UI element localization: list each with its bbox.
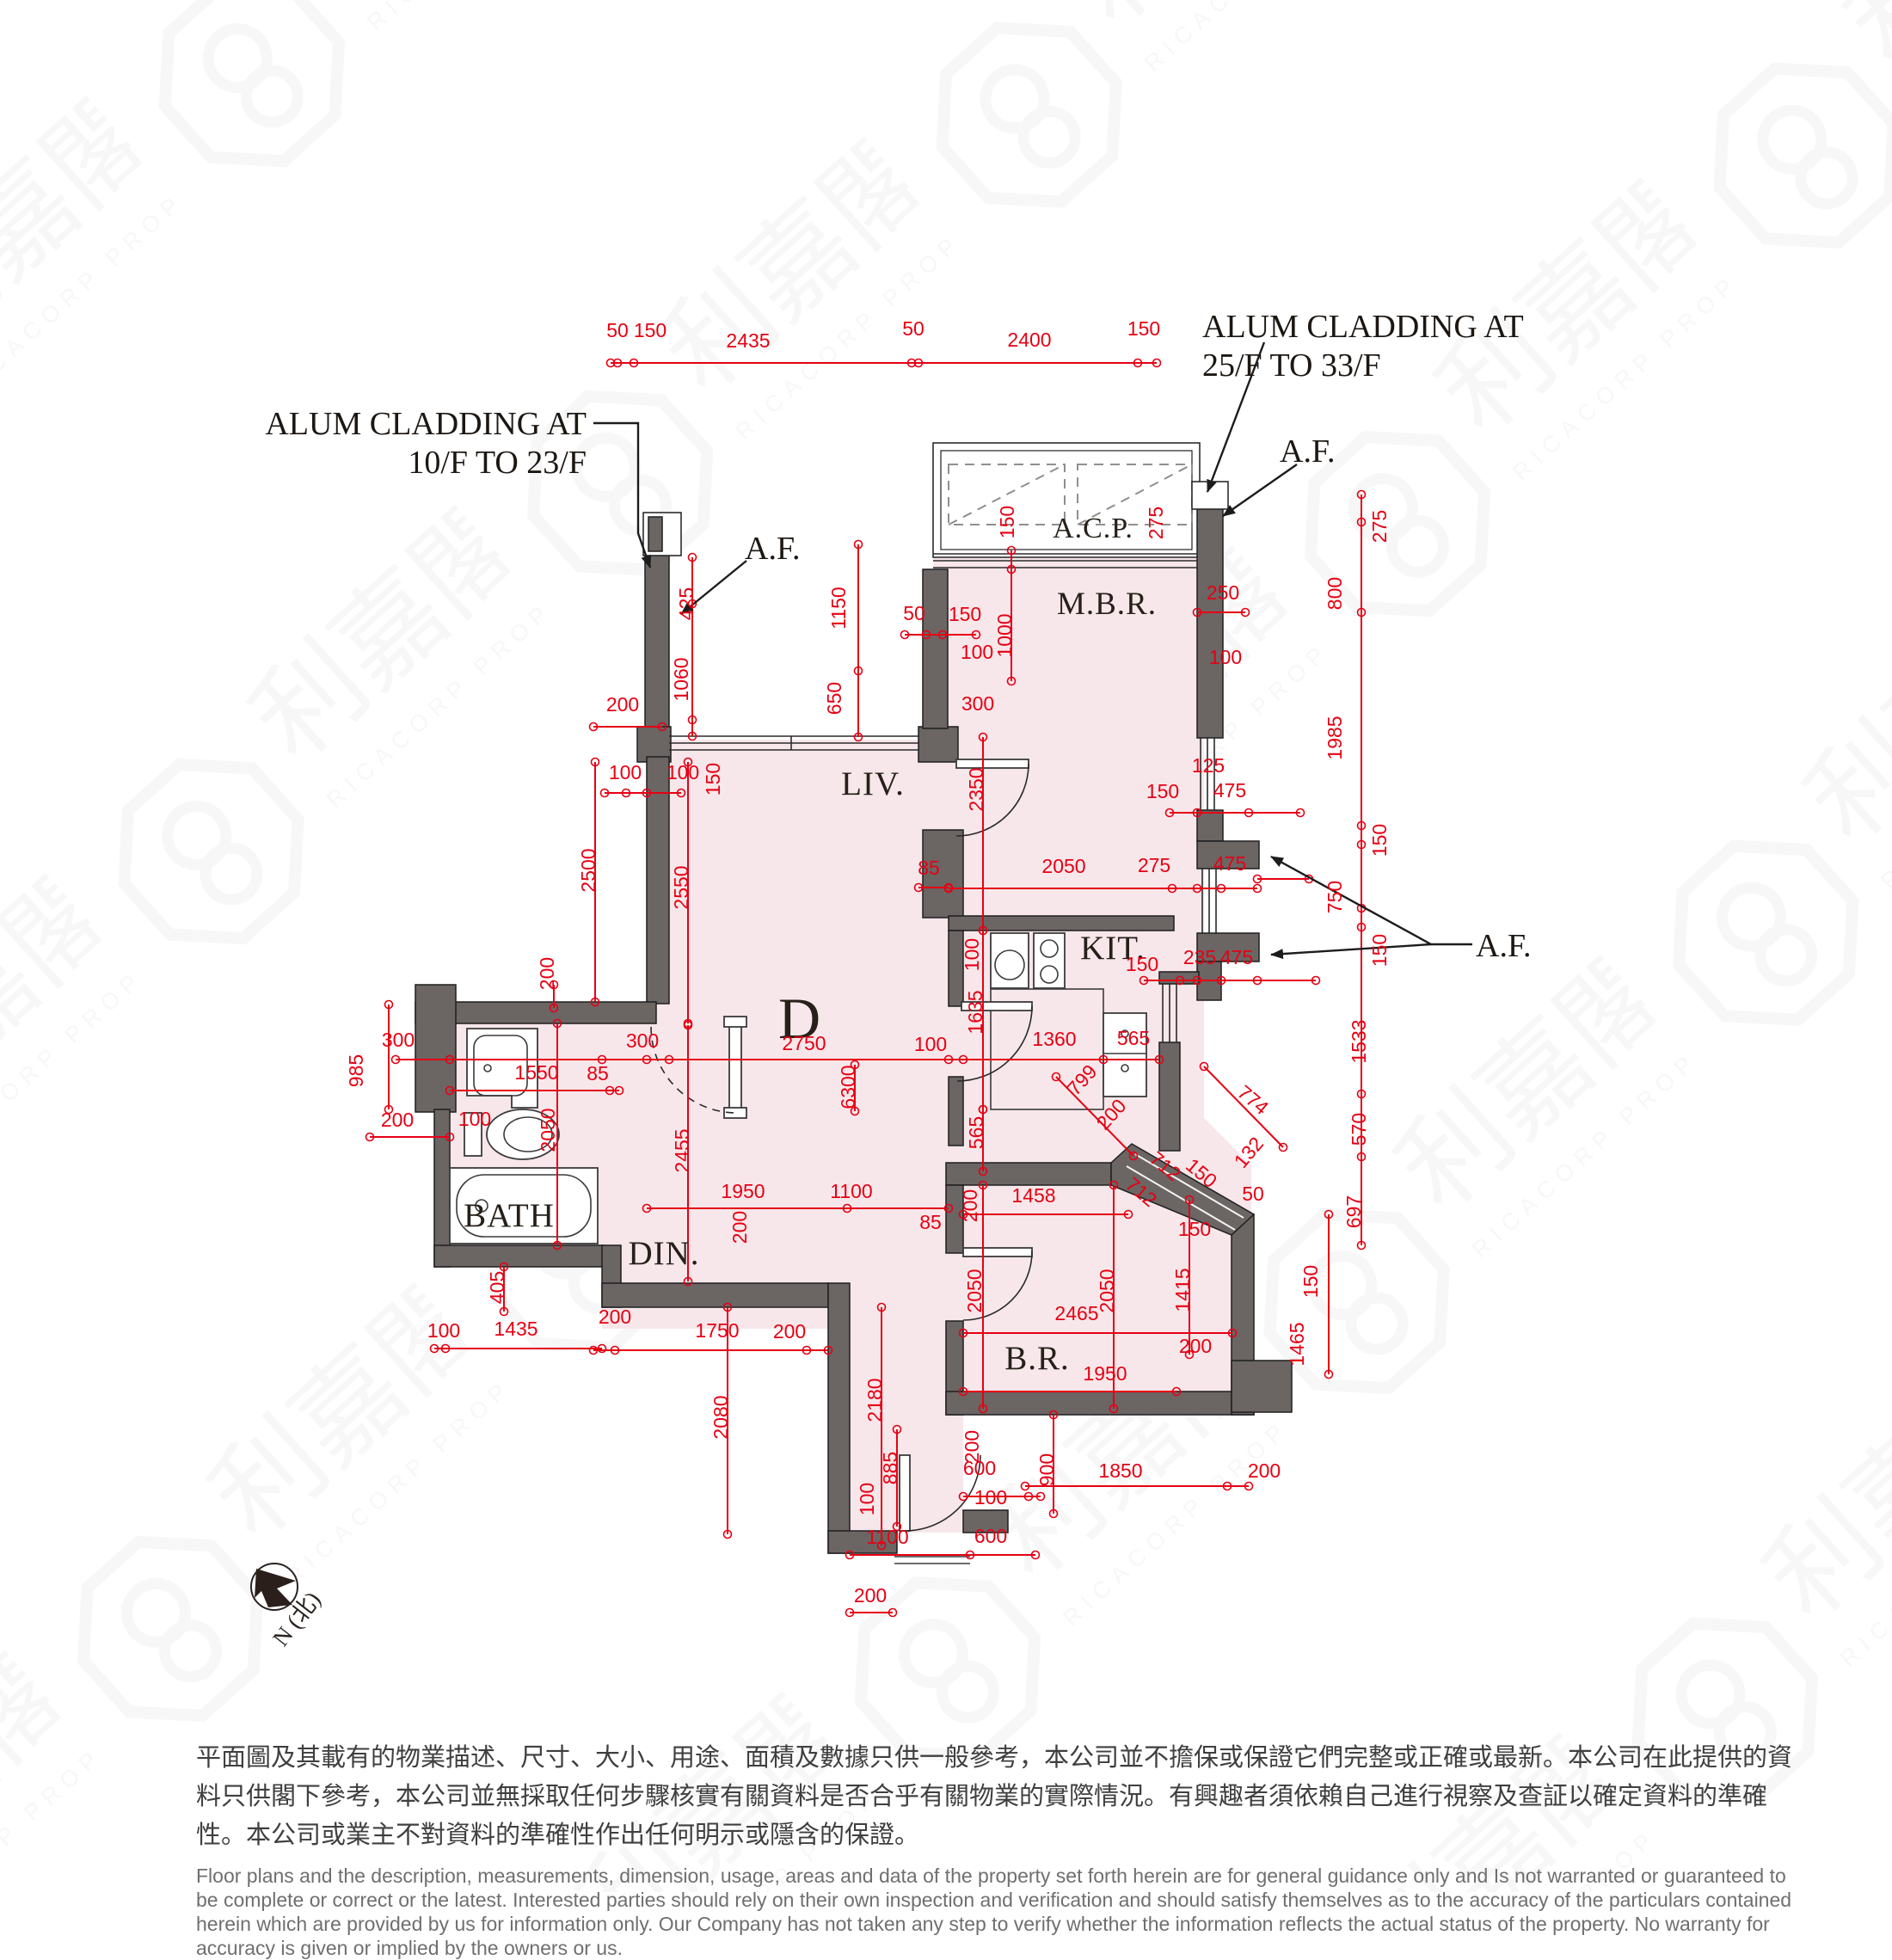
dimension-label: 697 <box>1342 1195 1365 1228</box>
dimension-label: 1000 <box>993 613 1016 657</box>
dimension-label: 475 <box>1213 779 1246 802</box>
dimension-label: 200 <box>599 1306 631 1328</box>
dimension-label: 200 <box>1179 1335 1212 1357</box>
dimension-label: 150 <box>1126 953 1158 975</box>
dimension-label: 800 <box>1324 577 1346 610</box>
dimension-label: 150 <box>1178 1218 1211 1240</box>
disclaimer-english: Floor plans and the description, measure… <box>196 1864 1806 1960</box>
dimension-label: 150 <box>1299 1265 1322 1298</box>
dimension-label: 100 <box>666 761 699 783</box>
dimension-label: 1100 <box>830 1180 872 1202</box>
dimension-label: 1550 <box>514 1061 558 1084</box>
dimension-label: 150 <box>1368 934 1391 967</box>
dimension-label: 100 <box>458 1108 491 1130</box>
dimension-label: 200 <box>728 1211 751 1244</box>
dimension-label: 275 <box>1138 854 1170 876</box>
alum-cladding-right-line1: ALUM CLADDING AT <box>1202 309 1524 345</box>
dimension-label: 200 <box>606 693 639 716</box>
dimension-label: 300 <box>961 692 994 715</box>
dimension-label: 85 <box>919 1211 942 1233</box>
dimension-label: 600 <box>974 1525 1007 1547</box>
dimension-label: 1100 <box>866 1526 908 1548</box>
dimension-label: 100 <box>961 641 993 663</box>
dimension-label: 2180 <box>863 1378 886 1422</box>
dimension-label: 1635 <box>964 990 986 1034</box>
dimension-label: 425 <box>675 587 697 620</box>
dimension-label: 200 <box>959 1189 981 1222</box>
dimension-label: 2750 <box>782 1032 826 1054</box>
room-label-din: DIN. <box>628 1235 699 1272</box>
dimension-label: 100 <box>609 761 642 783</box>
dimension-label: 2050 <box>1096 1269 1118 1312</box>
dimension-label: 275 <box>1368 510 1391 543</box>
dimension-label: 275 <box>1145 507 1167 539</box>
alum-cladding-left-line2: 10/F TO 23/F <box>408 445 587 481</box>
alum-cladding-right-line2: 25/F TO 33/F <box>1202 347 1381 384</box>
dimension-label: 650 <box>823 682 845 715</box>
dimension-label: 150 <box>634 319 666 341</box>
dimension-label: 2500 <box>577 848 599 892</box>
dimension-label: 150 <box>1368 824 1391 857</box>
room-label-mbr: M.B.R. <box>1057 587 1157 622</box>
dimension-label: 2455 <box>671 1128 693 1172</box>
room-label-br: B.R. <box>1004 1340 1070 1377</box>
dimension-label: 2050 <box>1041 855 1085 877</box>
dimension-label: 85 <box>587 1062 609 1084</box>
dimension-label: 600 <box>963 1457 996 1479</box>
dimension-label: 200 <box>854 1584 887 1607</box>
dimension-label: 900 <box>1035 1453 1058 1486</box>
room-label-bath: BATH <box>464 1197 555 1234</box>
dimension-label: 50 <box>1242 1183 1264 1205</box>
room-label-liv: LIV. <box>841 765 905 802</box>
dimension-label: 100 <box>1209 646 1242 668</box>
af-label-right: A.F. <box>1476 928 1532 964</box>
dimension-label: 50 <box>902 317 924 340</box>
dimension-label: 6300 <box>837 1065 859 1109</box>
dimension-label: 405 <box>486 1271 508 1304</box>
dimension-label: 150 <box>949 603 981 625</box>
dimension-label: 1950 <box>1083 1362 1127 1385</box>
dimension-label: 50 <box>606 319 629 341</box>
dimension-label: 50 <box>903 602 925 624</box>
dimension-label: 1415 <box>1171 1268 1194 1312</box>
dimension-label: 200 <box>773 1320 806 1343</box>
dimension-label: 1465 <box>1286 1322 1308 1366</box>
dimension-label: 1533 <box>1348 1019 1370 1063</box>
dimension-label: 85 <box>918 857 940 879</box>
dimension-label: 235 <box>1183 946 1216 968</box>
dimension-label: 150 <box>1127 317 1160 340</box>
dimension-label: 475 <box>1213 852 1246 875</box>
dimension-label: 250 <box>1207 581 1239 604</box>
dimension-label: 200 <box>536 957 558 990</box>
dimension-label: 2050 <box>537 1108 559 1152</box>
dimension-label: 1985 <box>1324 716 1346 759</box>
dimension-label: 1360 <box>1032 1028 1076 1050</box>
dimension-label: 300 <box>382 1029 415 1051</box>
dimension-label: 1150 <box>827 587 850 629</box>
dimension-label: 100 <box>856 1483 878 1515</box>
dimension-label: 2465 <box>1054 1302 1098 1324</box>
dimension-label: 125 <box>1192 754 1225 777</box>
dimension-label: 1850 <box>1098 1459 1142 1482</box>
dimension-label: 100 <box>974 1486 1007 1508</box>
dimension-label: 2350 <box>965 767 987 811</box>
dimension-label: 200 <box>381 1109 414 1131</box>
af-label-left: A.F. <box>745 531 801 567</box>
af-label-top-right: A.F. <box>1280 433 1336 470</box>
dimension-label: 1750 <box>695 1319 739 1342</box>
dimension-label: 1435 <box>494 1318 537 1340</box>
kitchen-stove <box>991 933 1065 988</box>
dimension-label: 565 <box>965 1116 987 1149</box>
dimension-label: 985 <box>345 1054 367 1087</box>
dimension-label: 2080 <box>709 1395 732 1439</box>
disclaimer-chinese: 平面圖及其載有的物業描述、尺寸、大小、用途、面積及數據只供一般參考，本公司並不擔… <box>196 1739 1806 1855</box>
dimension-label: 150 <box>702 763 724 796</box>
dimension-label: 570 <box>1348 1113 1370 1146</box>
dimension-label: 2400 <box>1007 329 1051 351</box>
alum-cladding-left-line1: ALUM CLADDING AT <box>265 406 587 442</box>
dimension-label: 1060 <box>670 657 692 701</box>
dimension-label: 1458 <box>1011 1184 1055 1207</box>
dimension-label: 150 <box>1146 780 1179 802</box>
dimension-label: 885 <box>879 1452 901 1484</box>
dimension-label: 750 <box>1324 881 1346 913</box>
dimension-label: 200 <box>1248 1459 1281 1482</box>
dimension-label: 300 <box>626 1029 659 1052</box>
floor-plan: 利嘉閣 RICACORP PROPERTIES <box>0 0 1892 1892</box>
dimension-label: 150 <box>996 506 1018 538</box>
af-feature-left-core <box>648 517 662 551</box>
disclaimer: 平面圖及其載有的物業描述、尺寸、大小、用途、面積及數據只供一般參考，本公司並不擔… <box>196 1739 1806 1960</box>
dimension-label: 565 <box>1117 1027 1150 1049</box>
dimension-label: 2435 <box>726 329 770 352</box>
dimension-label: 2050 <box>963 1269 986 1312</box>
dimension-label: 475 <box>1220 946 1253 968</box>
dimension-label: 100 <box>914 1033 947 1055</box>
dimension-label: 100 <box>961 938 983 971</box>
dimension-label: 100 <box>427 1319 460 1342</box>
dimension-label: 1950 <box>721 1180 765 1202</box>
room-label-acp: A.C.P. <box>1053 513 1133 544</box>
dimension-label: 2550 <box>670 865 692 909</box>
